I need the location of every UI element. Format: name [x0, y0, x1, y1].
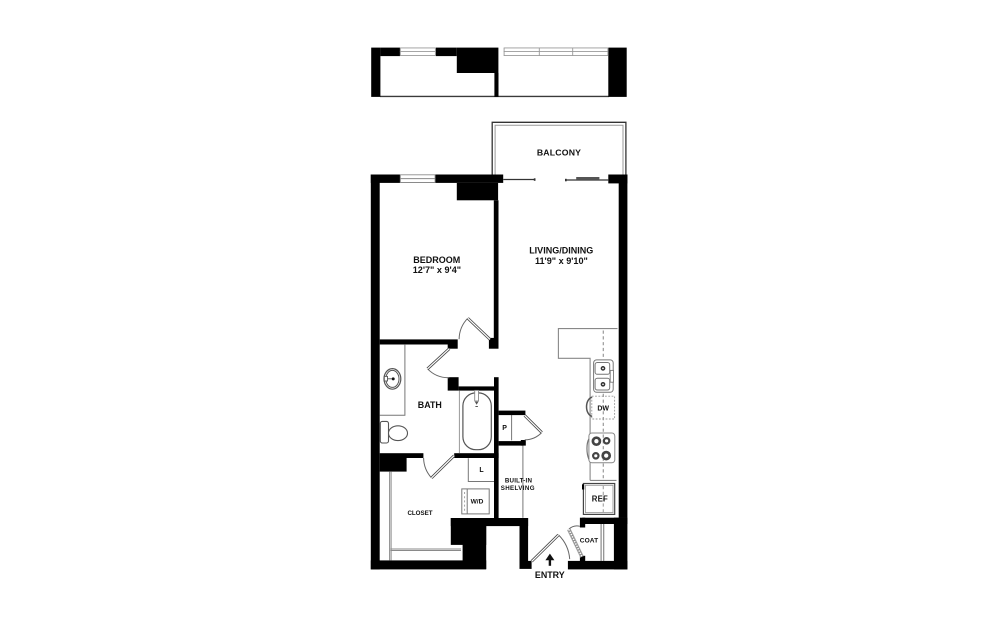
svg-text:BEDROOM: BEDROOM [413, 255, 460, 265]
svg-text:L: L [479, 467, 484, 474]
svg-text:BUILT-IN: BUILT-IN [505, 478, 533, 485]
svg-text:REF: REF [592, 494, 608, 503]
svg-text:SHELVING: SHELVING [501, 485, 535, 492]
svg-text:ENTRY: ENTRY [535, 570, 565, 580]
svg-text:P: P [502, 425, 507, 432]
svg-text:COAT: COAT [580, 538, 598, 545]
svg-text:W/D: W/D [471, 499, 484, 506]
svg-text:BALCONY: BALCONY [537, 148, 581, 158]
svg-text:LIVING/DINING: LIVING/DINING [529, 246, 593, 256]
svg-text:DW: DW [597, 405, 609, 412]
svg-text:11'9" x 9'10": 11'9" x 9'10" [535, 256, 588, 266]
svg-text:CLOSET: CLOSET [407, 510, 432, 517]
svg-text:BATH: BATH [418, 400, 442, 410]
svg-text:12'7" x 9'4": 12'7" x 9'4" [413, 265, 461, 275]
